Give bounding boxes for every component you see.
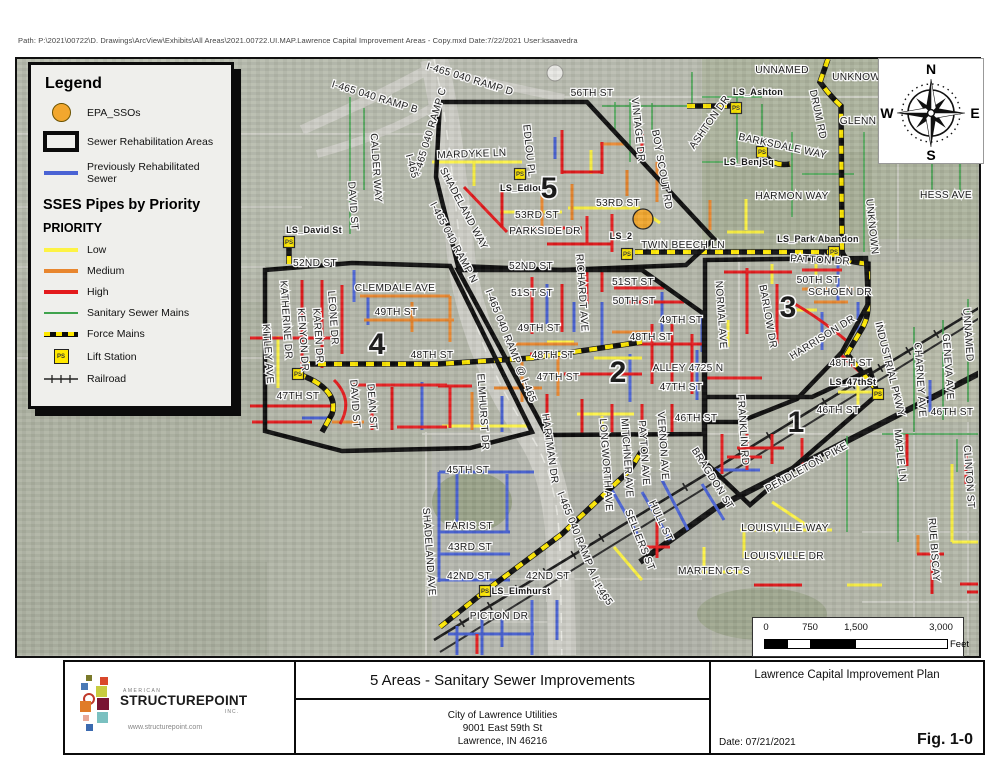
street-label: PICTON DR <box>470 611 529 622</box>
street-label: 47TH ST <box>537 372 580 383</box>
street-label: BARLOW DR <box>756 284 778 349</box>
lift-station-icon-text: PS <box>294 372 302 378</box>
logo-square <box>86 675 92 681</box>
legend-item-label: Previously Rehabilitated Sewer <box>87 161 221 185</box>
street-label: 56TH ST <box>571 88 614 99</box>
railroad-icon <box>43 373 79 385</box>
area-number-label: 5 <box>541 172 558 205</box>
logo-inc-text: INC. <box>225 709 239 715</box>
legend-item-label: High <box>87 286 109 298</box>
document-path-text: Path: P:\2021\00722\D. Drawings\ArcView\… <box>18 36 578 45</box>
lift-station-icon-text: PS <box>516 172 524 178</box>
red-line-icon <box>43 290 79 294</box>
logo-square <box>97 712 108 723</box>
street-label: 49TH ST <box>660 315 703 326</box>
legend-section-title: SSES Pipes by Priority <box>43 197 221 213</box>
plan-title: Lawrence Capital Improvement Plan <box>711 669 983 681</box>
sheet-title: 5 Areas - Sanitary Sewer Improvements <box>296 662 709 700</box>
street-label: 49TH ST <box>518 323 561 334</box>
lift-station-label: LS_2 <box>610 231 633 241</box>
lift-station-label: LS_Park Abandon <box>777 234 859 244</box>
lift-station-label: LS_BenjSq <box>724 157 774 167</box>
structurepoint-logo-block: AMERICAN STRUCTUREPOINT INC. www.structu… <box>63 660 296 755</box>
street-label: 46TH ST <box>931 407 974 418</box>
client-street: 9001 East 59th St <box>463 722 543 735</box>
street-label: PARKSIDE DR <box>509 226 581 237</box>
legend-item-label: Lift Station <box>87 351 137 363</box>
street-label: DEAN ST <box>364 383 378 430</box>
street-label: 47TH ST <box>660 382 703 393</box>
street-label: MARTEN CT S <box>678 566 750 577</box>
street-label: FARIS ST <box>445 521 493 532</box>
compass-west-label: W <box>880 105 894 121</box>
street-label: PATTON DR <box>790 253 850 267</box>
street-label: HESS AVE <box>920 190 972 201</box>
compass-south-label: S <box>926 147 935 163</box>
street-label: VERNON AVE <box>655 411 671 480</box>
street-label: ALLEY 4725 N <box>653 363 724 374</box>
legend-item-label: Medium <box>87 265 124 277</box>
lift-station-label: LS_Elmhurst <box>492 586 551 596</box>
lift-station-label: LS_Edlou <box>500 183 544 193</box>
legend-item: Sanitary Sewer Mains <box>43 307 221 319</box>
street-label: 50TH ST <box>613 296 656 307</box>
figure-number: Fig. 1-0 <box>917 731 973 749</box>
lift-station-icon-text: PS <box>481 589 489 595</box>
scale-tick-0: 0 <box>763 622 768 633</box>
water-tank <box>547 65 563 81</box>
legend-item-label: Sewer Rehabilitation Areas <box>87 136 213 148</box>
street-label: UNNAMED <box>755 65 809 76</box>
sso-circle-icon <box>43 103 79 122</box>
legend-item: Previously Rehabilitated Sewer <box>43 161 221 185</box>
street-label: NORMAL AVE <box>713 280 729 349</box>
lift-station-icon: PS <box>43 349 79 364</box>
street-label: 45TH ST <box>447 465 490 476</box>
street-label: LOUISVILLE WAY <box>741 523 828 534</box>
scale-tick-3000: 3,000 <box>929 622 953 633</box>
epa-sso-points <box>633 209 653 229</box>
street-label: KENYON DR <box>295 308 310 372</box>
client-city: Lawrence, IN 46216 <box>458 735 548 748</box>
scale-tick-750: 750 <box>802 622 818 633</box>
street-label: CLEMDALE AVE <box>355 283 435 294</box>
lift-station-label: LS_Ashton <box>733 87 783 97</box>
legend-item: EPA_SSOs <box>43 103 221 122</box>
logo-square <box>83 715 89 721</box>
street-label: 48TH ST <box>830 358 873 369</box>
compass-north-label: N <box>926 61 936 77</box>
scale-tick-1500: 1,500 <box>844 622 868 633</box>
legend-item-label: EPA_SSOs <box>87 107 141 119</box>
street-label: 48TH ST <box>532 350 575 361</box>
client-name: City of Lawrence Utilities <box>448 709 557 722</box>
street-label: GLENN <box>840 116 877 127</box>
street-label: 52ND ST <box>293 258 337 269</box>
street-label: 53RD ST <box>596 198 640 209</box>
lift-station-icon-text: PS <box>623 252 631 258</box>
compass-rose-icon: N E S W <box>879 59 983 163</box>
lift-station-icon-text: PS <box>758 150 766 156</box>
legend-title: Legend <box>45 75 221 93</box>
street-label: LOUISVILLE DR <box>744 551 824 562</box>
area-number-label: 3 <box>780 291 797 324</box>
logo-square <box>80 701 91 712</box>
street-label: RICHARDT AVE <box>573 254 589 333</box>
lift-station-icon-text: PS <box>285 240 293 246</box>
logo-square <box>100 677 108 685</box>
legend-subsection-title: PRIORITY <box>43 221 221 235</box>
legend-items-priority: LowMediumHighSanitary Sewer MainsForce M… <box>43 244 221 385</box>
legend-item: Low <box>43 244 221 256</box>
legend-item: Medium <box>43 265 221 277</box>
legend-item-label: Force Mains <box>87 328 145 340</box>
street-label: 46TH ST <box>817 405 860 416</box>
legend-item-label: Low <box>87 244 106 256</box>
title-block-center: 5 Areas - Sanitary Sewer Improvements Ci… <box>294 660 711 755</box>
lift-station-label: LS_47thSt <box>830 377 877 387</box>
legend-item: Force Mains <box>43 328 221 340</box>
scale-bar: 0 750 1,500 3,000 Feet <box>752 617 964 657</box>
street-label: 50TH ST <box>797 275 840 286</box>
logo-square <box>96 686 107 697</box>
street-label: 52ND ST <box>509 261 553 272</box>
date-label: Date: 07/21/2021 <box>719 737 796 748</box>
lift-station-label: LS_David St <box>286 225 342 235</box>
logo-square <box>81 683 88 690</box>
rehab-area-icon <box>43 131 79 152</box>
street-label: 48TH ST <box>411 350 454 361</box>
logo-website-url: www.structurepoint.com <box>65 724 265 731</box>
title-block-right: Lawrence Capital Improvement Plan Date: … <box>709 660 985 755</box>
legend-item: High <box>43 286 221 298</box>
legend-items-top: EPA_SSOsSewer Rehabilitation AreasPrevio… <box>43 103 221 185</box>
legend-item: Sewer Rehabilitation Areas <box>43 131 221 152</box>
street-label: 51ST ST <box>612 277 654 288</box>
epa-sso-icon <box>633 209 653 229</box>
street-label: 42ND ST <box>447 571 491 582</box>
blue-line-icon <box>43 171 79 175</box>
yellow-line-icon <box>43 248 79 252</box>
street-label: 47TH ST <box>277 391 320 402</box>
legend-item-label: Railroad <box>87 373 126 385</box>
lift-station-icon-text: PS <box>874 392 882 398</box>
street-label: 51ST ST <box>511 288 553 299</box>
map-exhibit-page: { "page": { "path_text": "Path: P:\\2021… <box>0 0 1000 773</box>
street-label: SCHOEN DR <box>808 287 872 298</box>
street-label: 46TH ST <box>675 413 718 424</box>
lift-station-icon-text: PS <box>732 106 740 112</box>
street-label: KATHERINE DR <box>277 280 293 359</box>
street-label: 48TH ST <box>630 332 673 343</box>
logo-square <box>97 698 109 710</box>
scale-unit-label: Feet <box>950 639 969 650</box>
street-label: 43RD ST <box>448 542 492 553</box>
legend-item: Railroad <box>43 373 221 385</box>
client-address: City of Lawrence Utilities 9001 East 59t… <box>296 700 709 757</box>
street-label: TWIN BEECH LN <box>641 240 725 251</box>
area-number-label: 1 <box>788 406 805 439</box>
green-line-icon <box>43 312 79 314</box>
street-label: 42ND ST <box>526 571 570 582</box>
compass-east-label: E <box>970 105 979 121</box>
area-number-label: 4 <box>369 328 386 361</box>
legend-item-label: Sanitary Sewer Mains <box>87 307 189 319</box>
force-main-icon <box>43 332 79 337</box>
logo-company-name: STRUCTUREPOINT <box>120 693 247 708</box>
legend-panel: Legend EPA_SSOsSewer Rehabilitation Area… <box>28 62 234 409</box>
area-number-label: 2 <box>610 356 627 389</box>
legend-item: PSLift Station <box>43 349 221 364</box>
street-label: HARMON WAY <box>755 191 828 202</box>
orange-line-icon <box>43 269 79 273</box>
street-label: 49TH ST <box>375 307 418 318</box>
scale-bar-segments <box>764 639 948 649</box>
compass-rose: N E S W <box>878 58 984 164</box>
street-label: 53RD ST <box>515 210 559 221</box>
